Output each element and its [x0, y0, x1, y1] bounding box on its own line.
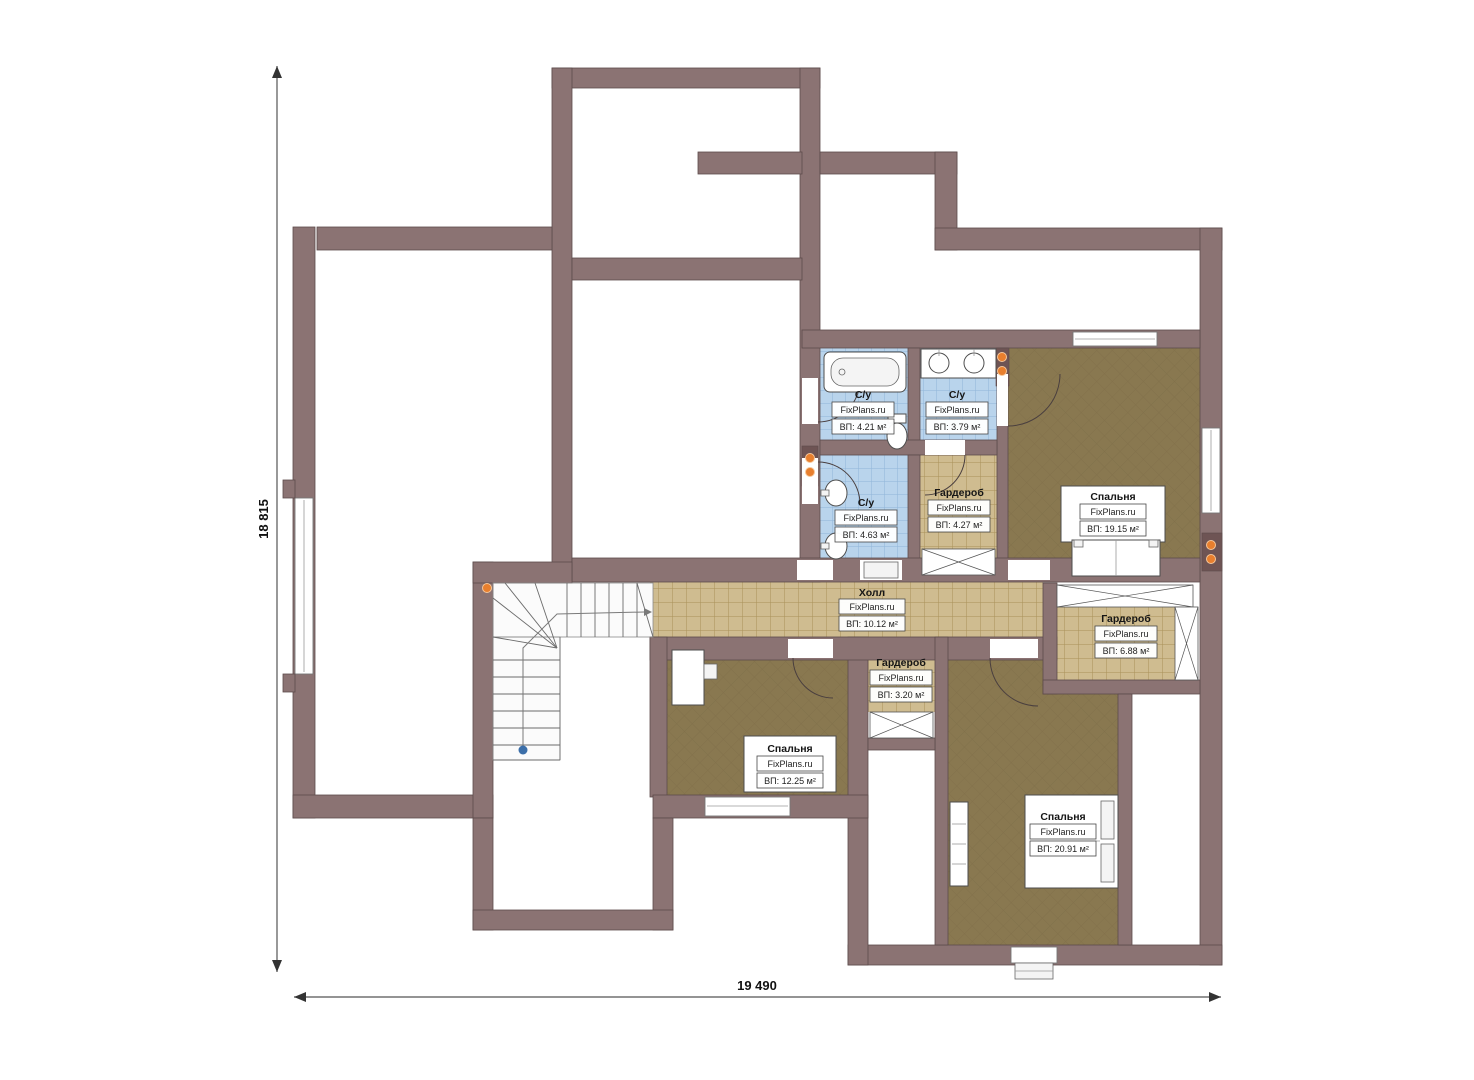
socket-dot-icon: [1207, 541, 1216, 550]
stairs-upper-run: [493, 583, 653, 637]
bed-2-pillow-2: [1101, 844, 1114, 882]
door-gap-bedroom2: [788, 639, 833, 658]
room-area: ВП: 10.12 м²: [846, 619, 898, 629]
bed-2-pillow-1: [1101, 801, 1114, 839]
room-label-wardrobe-3: Гардероб FixPlans.ru ВП: 3.20 м²: [870, 657, 932, 702]
bed-1-corner-right: [1149, 540, 1158, 547]
window-bedroom2-south: [705, 797, 790, 816]
room-area: ВП: 4.63 м²: [843, 530, 890, 540]
room-name: Гардероб: [876, 657, 926, 669]
socket-dot-icon: [998, 367, 1007, 376]
watermark: FixPlans.ru: [849, 602, 894, 612]
sink-tap-icon-2: [821, 543, 829, 549]
wall-void-east: [800, 68, 820, 582]
stair-start-dot: [519, 746, 528, 755]
wall-north-right-2: [935, 228, 1222, 250]
socket-dot-icon: [998, 353, 1007, 362]
dresser-icon: [672, 650, 704, 705]
room-name: С/у: [858, 497, 875, 509]
room-name: Гардероб: [1101, 613, 1151, 625]
wall-bedroom2-west: [650, 637, 667, 797]
door-gap-bath1: [802, 378, 818, 424]
door-gap-wardrobe1: [925, 440, 965, 455]
wall-bedroom3-east: [1118, 694, 1132, 945]
wall-bath1-bath2: [908, 348, 920, 455]
watermark: FixPlans.ru: [878, 673, 923, 683]
wall-east: [1200, 228, 1222, 965]
wall-stair-connector: [473, 562, 572, 583]
wall-bath-mid: [820, 440, 997, 455]
watermark: FixPlans.ru: [936, 503, 981, 513]
wardrobe-1-cabinet-icon: [922, 549, 995, 575]
dimension-height-label: 18 815: [256, 499, 271, 539]
door-gap-hall-bedroom1: [1008, 560, 1050, 580]
wall-south-left: [293, 795, 493, 818]
room-area: ВП: 3.20 м²: [878, 690, 925, 700]
wall-void-west: [552, 68, 572, 582]
socket-dot-icon: [806, 454, 815, 463]
sink-tap-icon-1: [821, 490, 829, 496]
watermark: FixPlans.ru: [840, 405, 885, 415]
bay-stub-top: [283, 480, 295, 498]
wall-wardrobe3-south: [868, 738, 935, 750]
floor-plan-canvas: С/у FixPlans.ru ВП: 4.21 м² С/у FixPlans…: [0, 0, 1474, 1080]
socket-dot-icon: [483, 584, 492, 593]
room-area: ВП: 3.79 м²: [934, 422, 981, 432]
bed-1-corner-left: [1074, 540, 1083, 547]
room-name: Холл: [859, 587, 885, 599]
wall-pier-3: [1202, 533, 1222, 571]
stairs-lower-run: [493, 637, 560, 760]
door-gap-hall-north: [797, 560, 833, 580]
door-gap-bedroom1: [997, 374, 1008, 426]
watermark: FixPlans.ru: [934, 405, 979, 415]
socket-dot-icon: [1207, 555, 1216, 564]
door-gap-bath3: [802, 458, 818, 504]
room-name: С/у: [855, 389, 872, 401]
wardrobe-2-cabinet-right-icon: [1175, 607, 1198, 680]
room-area: ВП: 4.21 м²: [840, 422, 887, 432]
watermark: FixPlans.ru: [843, 513, 888, 523]
wall-bedroom3-west: [935, 637, 948, 945]
room-area: ВП: 12.25 м²: [764, 776, 816, 786]
socket-dot-icon: [806, 468, 815, 477]
room-name: Спальня: [767, 743, 812, 755]
bay-stub-bottom: [283, 674, 295, 692]
room-name: Спальня: [1040, 811, 1085, 823]
room-name: Спальня: [1090, 491, 1135, 503]
wall-left-north: [317, 227, 552, 250]
floor-plan-page: С/у FixPlans.ru ВП: 4.21 м² С/у FixPlans…: [0, 0, 1474, 1080]
sliding-door-icon: [864, 562, 898, 578]
watermark: FixPlans.ru: [1103, 629, 1148, 639]
wardrobe-2-cabinet-top-icon: [1057, 585, 1193, 607]
wardrobe-3-cabinet-icon: [870, 712, 933, 738]
room-area: ВП: 20.91 м²: [1037, 844, 1089, 854]
dimension-width-label: 19 490: [737, 978, 777, 993]
wall-balcony-bottom: [473, 910, 673, 930]
watermark: FixPlans.ru: [1090, 507, 1135, 517]
room-area: ВП: 19.15 м²: [1087, 524, 1139, 534]
wall-void-south: [572, 258, 802, 280]
room-label-wardrobe-1: Гардероб FixPlans.ru ВП: 4.27 м²: [928, 487, 990, 532]
wall-stub: [698, 152, 802, 174]
room-area: ВП: 6.88 м²: [1103, 646, 1150, 656]
door-gap-bedroom3: [990, 639, 1038, 658]
balcony-door-south: [1011, 947, 1057, 963]
wall-top: [552, 68, 820, 88]
wall-wardrobe2-south: [1043, 680, 1200, 694]
room-name: С/у: [949, 389, 966, 401]
wall-wardrobe2-west: [1043, 583, 1057, 694]
dresser-drawer-icon: [704, 664, 717, 679]
watermark: FixPlans.ru: [767, 759, 812, 769]
room-name: Гардероб: [934, 487, 984, 499]
bathtub-drain-icon: [839, 369, 845, 375]
room-area: ВП: 4.27 м²: [936, 520, 983, 530]
wall-stair-west: [473, 562, 493, 818]
watermark: FixPlans.ru: [1040, 827, 1085, 837]
room-label-wardrobe-2: Гардероб FixPlans.ru ВП: 6.88 м²: [1095, 613, 1157, 658]
